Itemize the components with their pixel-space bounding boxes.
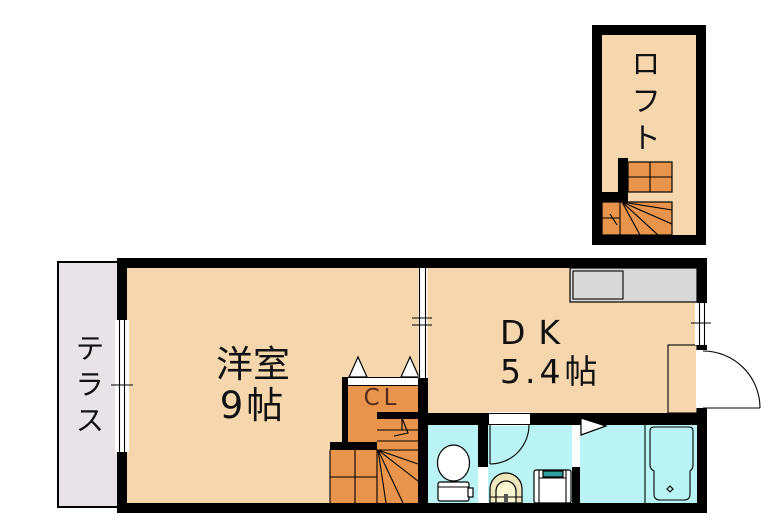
toilet-door-opening — [478, 467, 488, 503]
washing-machine — [534, 470, 571, 503]
wall-stairs-right — [418, 385, 428, 503]
terrace-label: テラス — [71, 333, 103, 441]
wall-top — [117, 258, 707, 268]
entrance-window — [695, 303, 709, 345]
wall-dk-bottom — [418, 413, 707, 425]
closet-label: CL — [350, 386, 414, 411]
western-room-label: 洋室9帖 — [153, 345, 353, 426]
dk-size: 5.4帖 — [500, 353, 601, 392]
entrance-door-opening — [696, 350, 708, 408]
stairs-upper-run — [377, 419, 418, 450]
entrance-door-swing — [703, 351, 760, 408]
kitchen-counter — [570, 268, 697, 302]
toilet-tank — [438, 482, 469, 501]
wall-closet-bottom — [377, 412, 418, 419]
toilet-handle — [468, 488, 473, 497]
loft-stairs-wall-h — [602, 192, 628, 202]
dk-name: DK — [500, 314, 601, 353]
western-room-size: 9帖 — [153, 386, 353, 427]
western-room-name: 洋室 — [216, 343, 290, 386]
washer-accent — [543, 471, 563, 477]
washroom-door-opening — [489, 412, 530, 426]
wall-toilet-right — [478, 413, 488, 467]
floorplan: ロフト テラス 洋室9帖 DK5.4帖 CL — [0, 0, 769, 522]
dk-label: DK5.4帖 — [500, 314, 601, 392]
room-partition-cap — [418, 378, 428, 385]
wall-stairs-top — [330, 442, 377, 450]
washbasin — [490, 473, 522, 503]
terrace-window — [115, 320, 129, 452]
toilet-bowl — [438, 445, 470, 481]
wall-bottom — [117, 503, 707, 513]
washbasin-faucet — [504, 494, 508, 502]
loft-label: ロフト — [626, 48, 659, 159]
bathroom-door-opening — [572, 425, 580, 467]
